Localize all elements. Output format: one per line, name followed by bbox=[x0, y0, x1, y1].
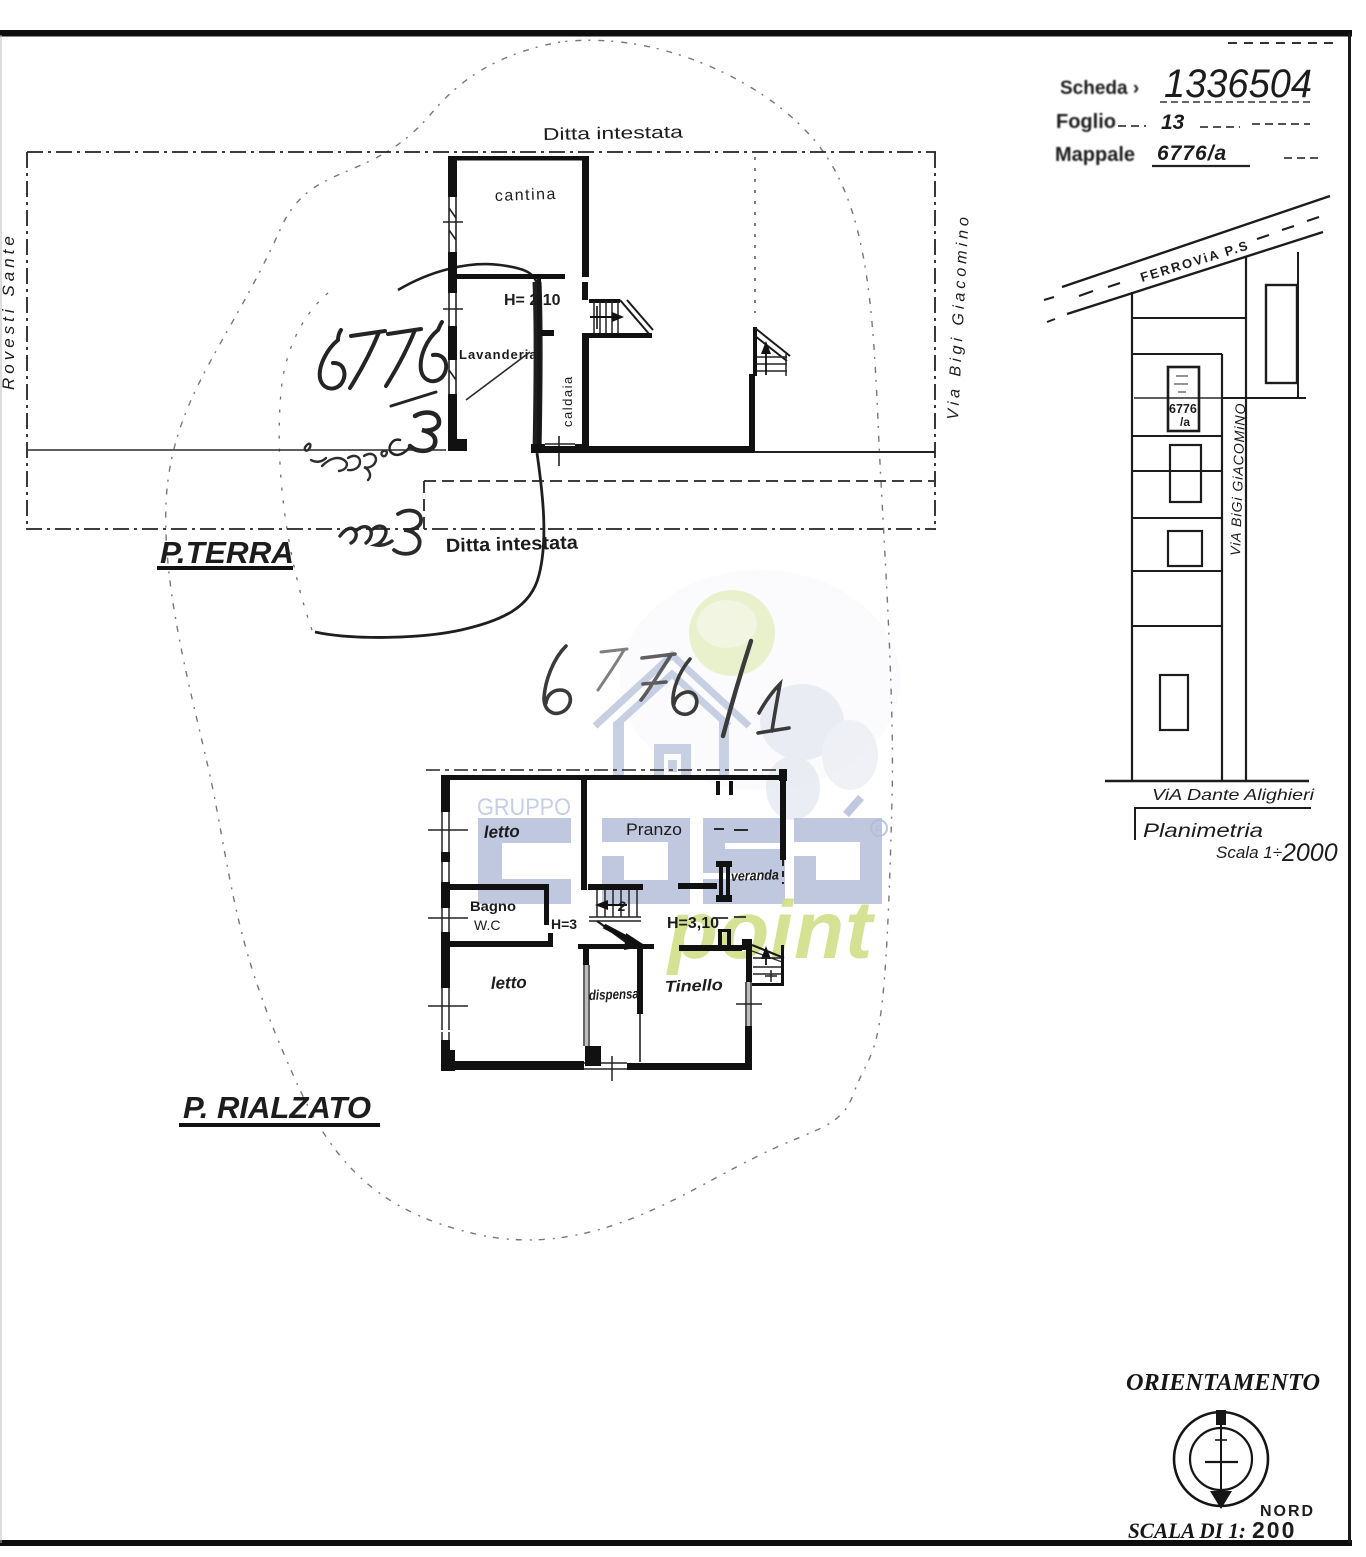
svg-text:GRUPPO: GRUPPO bbox=[477, 794, 571, 821]
svg-text:ORIENTAMENTO: ORIENTAMENTO bbox=[1126, 1370, 1320, 1396]
svg-text:Bagno: Bagno bbox=[470, 898, 516, 914]
svg-text:2000: 2000 bbox=[1281, 839, 1338, 867]
svg-text:Ditta intestata: Ditta intestata bbox=[543, 123, 684, 144]
svg-text:Rovesti Sante: Rovesti Sante bbox=[0, 232, 18, 390]
svg-text:letto: letto bbox=[490, 973, 527, 993]
svg-text:R: R bbox=[875, 824, 883, 836]
svg-text:Ditta intestata: Ditta intestata bbox=[446, 533, 579, 557]
svg-text:6776/a: 6776/a bbox=[1157, 142, 1227, 165]
svg-text:/a: /a bbox=[1180, 415, 1190, 429]
svg-text:1336504: 1336504 bbox=[1164, 62, 1312, 106]
svg-text:H= 2.10: H= 2.10 bbox=[504, 292, 561, 309]
svg-text:ViA Dante Alighieri: ViA Dante Alighieri bbox=[1152, 787, 1315, 804]
svg-text:veranda: veranda bbox=[731, 866, 780, 884]
svg-text:Mappale: Mappale bbox=[1055, 144, 1135, 166]
svg-text:200: 200 bbox=[1252, 1517, 1296, 1543]
svg-text:SCALA DI 1:: SCALA DI 1: bbox=[1128, 1518, 1246, 1543]
svg-text:H=3,10: H=3,10 bbox=[667, 915, 719, 932]
svg-text:Planimetria: Planimetria bbox=[1143, 821, 1263, 842]
svg-text:Tinello: Tinello bbox=[665, 977, 724, 996]
svg-text:Scheda ›: Scheda › bbox=[1060, 78, 1139, 99]
svg-text:W.C: W.C bbox=[474, 917, 500, 933]
svg-text:H=3: H=3 bbox=[551, 916, 577, 932]
svg-text:letto: letto bbox=[483, 822, 520, 842]
svg-text:2: 2 bbox=[617, 898, 626, 914]
svg-text:6776: 6776 bbox=[1169, 402, 1197, 416]
svg-text:dispensa: dispensa bbox=[589, 985, 640, 1003]
svg-text:Pranzo: Pranzo bbox=[626, 820, 682, 839]
svg-text:Scala 1÷: Scala 1÷ bbox=[1216, 843, 1282, 862]
svg-text:cantina: cantina bbox=[495, 186, 558, 205]
svg-text:caldaia: caldaia bbox=[560, 375, 575, 427]
svg-text:P. RIALZATO: P. RIALZATO bbox=[183, 1090, 371, 1125]
svg-text:13: 13 bbox=[1161, 111, 1185, 134]
svg-text:P.TERRA: P.TERRA bbox=[160, 535, 294, 570]
svg-text:Foglio: Foglio bbox=[1056, 111, 1116, 133]
